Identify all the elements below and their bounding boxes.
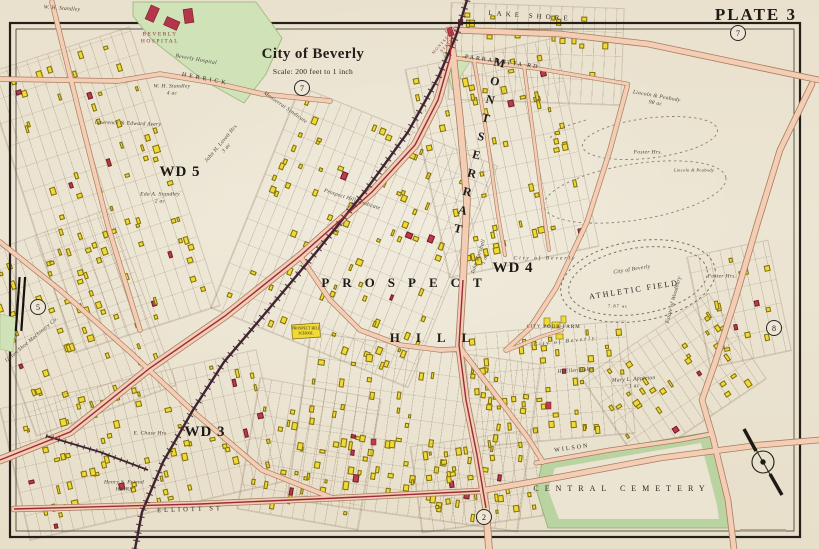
compass-rose-icon (744, 429, 782, 495)
left-green-strip (0, 314, 16, 352)
plate-number: PLATE 3 (715, 5, 797, 25)
dashed-trails (540, 110, 730, 234)
road-lake-shore (448, 30, 819, 80)
map-base-layer (0, 0, 819, 549)
prospect-hill-school-building (292, 323, 321, 339)
scale-bars (15, 277, 26, 331)
map-title: City of Beverly (250, 46, 376, 63)
copyright-fine-print (740, 529, 786, 532)
road-main-diagonal (0, 32, 452, 460)
athletic-field-track (555, 229, 722, 332)
map-scale-note: Scale: 200 feet to 1 inch (250, 67, 376, 76)
map-title-block: City of Beverly Scale: 200 feet to 1 inc… (250, 46, 376, 76)
trolley-lines (0, 32, 486, 509)
atlas-map-beverly: MONTSERRATPROSPECTHILLWD 5WD 4WD 3LAKE S… (0, 0, 819, 549)
